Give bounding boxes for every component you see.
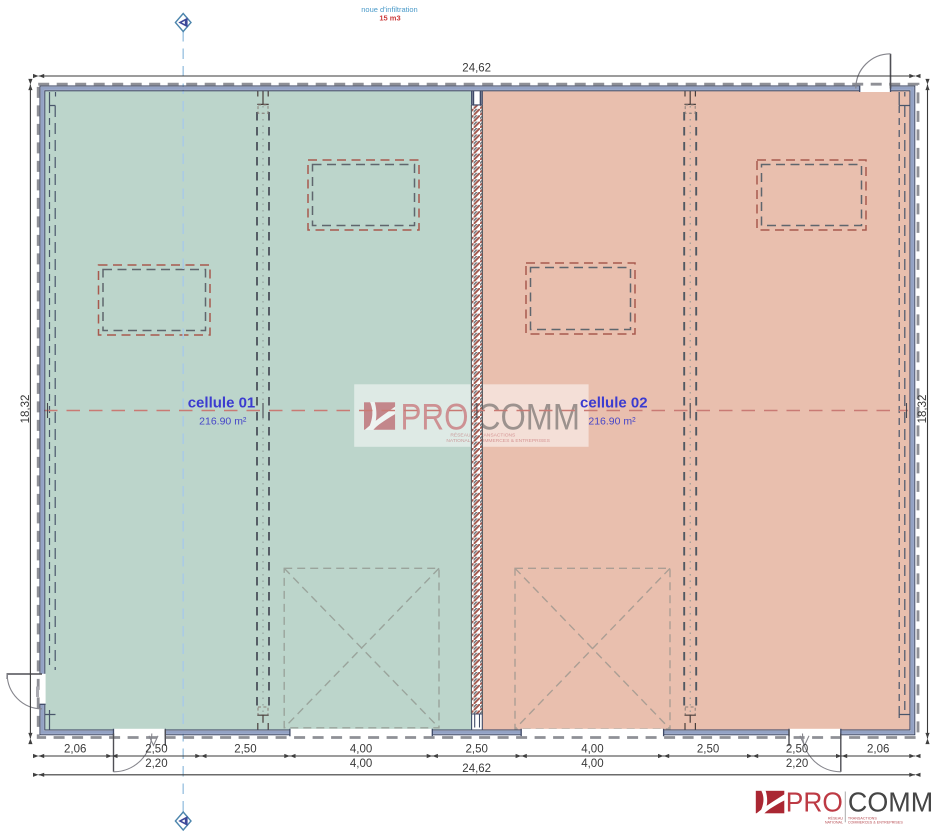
svg-text:15 m3: 15 m3 — [379, 14, 400, 23]
svg-text:4,00: 4,00 — [350, 743, 372, 755]
svg-text:PRO: PRO — [401, 396, 469, 438]
svg-text:24,62: 24,62 — [462, 763, 491, 775]
svg-text:COMMERCES & ENTREPRISES: COMMERCES & ENTREPRISES — [477, 438, 551, 444]
svg-text:216.90 m²: 216.90 m² — [588, 416, 636, 428]
svg-text:2,20: 2,20 — [145, 758, 167, 770]
svg-text:2,50: 2,50 — [234, 743, 256, 755]
svg-text:NATIONAL: NATIONAL — [825, 820, 843, 824]
svg-text:216.90 m²: 216.90 m² — [199, 416, 247, 428]
svg-text:NATIONAL: NATIONAL — [446, 438, 470, 444]
svg-text:2,06: 2,06 — [867, 743, 889, 755]
svg-text:2,20: 2,20 — [786, 758, 808, 770]
svg-text:cellule 01: cellule 01 — [188, 395, 256, 412]
svg-text:4,00: 4,00 — [581, 758, 603, 770]
svg-text:2,50: 2,50 — [466, 743, 488, 755]
svg-text:RÉSEAU: RÉSEAU — [450, 432, 471, 439]
svg-text:2,50: 2,50 — [697, 743, 719, 755]
svg-text:18,32: 18,32 — [917, 395, 929, 424]
svg-text:4,00: 4,00 — [350, 758, 372, 770]
svg-text:24,62: 24,62 — [462, 63, 491, 75]
svg-text:4,00: 4,00 — [581, 743, 603, 755]
svg-text:COMMERCES & ENTREPRISES: COMMERCES & ENTREPRISES — [848, 820, 903, 824]
svg-text:cellule 02: cellule 02 — [580, 395, 648, 412]
svg-text:2,06: 2,06 — [64, 743, 86, 755]
svg-text:2,50: 2,50 — [145, 743, 167, 755]
svg-text:PRO: PRO — [786, 787, 843, 818]
svg-text:COMM: COMM — [848, 787, 933, 818]
svg-text:COMM: COMM — [477, 396, 580, 438]
svg-text:2,50: 2,50 — [786, 743, 808, 755]
svg-text:18,32: 18,32 — [20, 395, 32, 424]
